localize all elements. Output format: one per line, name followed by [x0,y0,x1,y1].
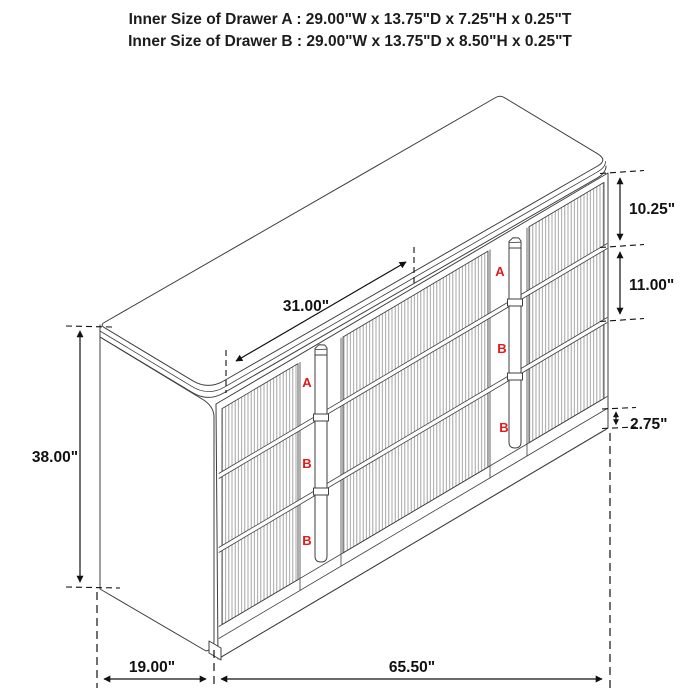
diagram-svg: Inner Size of Drawer A : 29.00"W x 13.75… [0,0,700,700]
dim-depth-label: 19.00" [129,659,175,676]
dim-drawer-a-label: 10.25" [629,201,675,218]
title-line-1: Inner Size of Drawer A : 29.00"W x 13.75… [129,11,572,28]
drawer-label-b: B [497,341,506,356]
handle-bar [509,248,521,448]
drawer-label-b: B [499,420,508,435]
drawer-label-a: A [302,375,312,390]
drawer-label-b: B [302,456,311,471]
dim-width-label: 65.50" [389,659,435,676]
dim-drawer-b-label: 11.00" [629,277,674,294]
dim-top-width-label: 31.00" [283,298,329,315]
handle-joint [508,299,523,306]
header-title: Inner Size of Drawer A : 29.00"W x 13.75… [128,11,572,50]
handle-bar [315,355,327,562]
flute-section-right [529,182,604,442]
dim-base: 2.75" [602,408,668,434]
drawer-label-a: A [495,264,505,279]
dim-height-label: 38.00" [32,449,78,466]
dim-drawer-b: 11.00" [600,252,674,322]
handle-joint [314,488,329,495]
dim-base-label: 2.75" [630,416,668,433]
flute-section-left [222,364,298,625]
handle-right [508,238,523,448]
extension-line [600,171,644,174]
furniture-dimension-diagram: Inner Size of Drawer A : 29.00"W x 13.75… [0,0,700,700]
handle-joint [314,414,329,421]
cabinet-drawing [100,96,608,660]
dim-drawer-a: 10.25" [600,171,675,248]
drawer-label-b: B [302,533,311,548]
title-line-2: Inner Size of Drawer B : 29.00"W x 13.75… [128,33,572,50]
side-panel [100,337,214,651]
handle-middle [314,345,329,562]
handle-joint [508,373,523,380]
